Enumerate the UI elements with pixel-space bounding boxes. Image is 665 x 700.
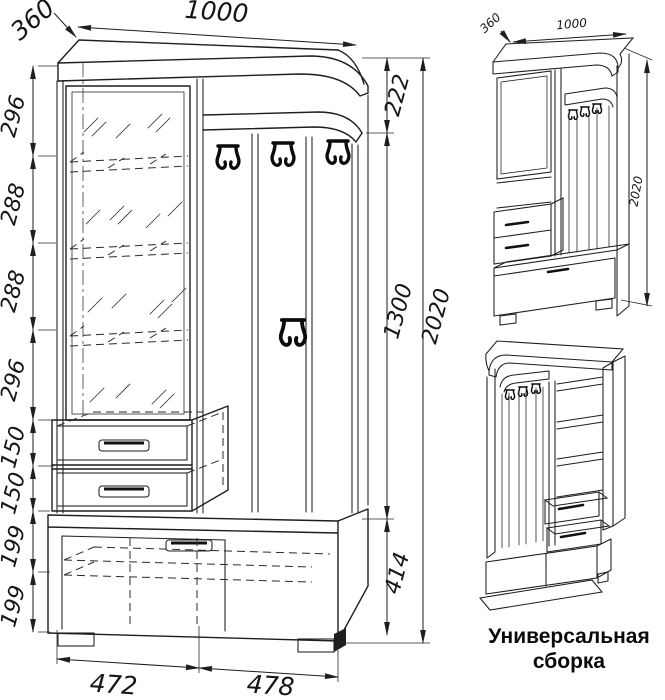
hallway-unit-blueprint: 1000 360 296 288 288 296 150 150 199 199… bbox=[0, 0, 665, 700]
iso2-open-flap bbox=[480, 580, 602, 610]
iso1-dimensions: 1000 360 2020 bbox=[477, 10, 652, 306]
bench-hidden-lines bbox=[64, 538, 330, 628]
iso2-canopy bbox=[486, 341, 623, 377]
iso-dim-1000: 1000 bbox=[556, 16, 588, 33]
canopy-shelf bbox=[58, 40, 368, 96]
iso1-right-panel bbox=[617, 54, 629, 316]
coat-hook-icon bbox=[568, 110, 577, 119]
dim-414: 414 bbox=[380, 550, 415, 597]
iso-view-universal bbox=[480, 341, 625, 610]
left-dimension-chain: 296 288 288 296 150 150 199 199 bbox=[0, 66, 58, 632]
right-dimension-chain: 222 1300 414 2020 bbox=[346, 58, 456, 643]
iso-dim-360: 360 bbox=[477, 10, 504, 36]
iso1-mirror bbox=[497, 71, 551, 179]
dim-472: 472 bbox=[89, 668, 139, 700]
bench-cabinet bbox=[48, 509, 368, 652]
caption-line-2: сборка bbox=[533, 650, 606, 673]
iso2-divider bbox=[549, 381, 555, 546]
technical-drawing: 1000 360 296 288 288 296 150 150 199 199… bbox=[0, 0, 665, 700]
dim-288: 288 bbox=[0, 181, 31, 228]
dim-199: 199 bbox=[0, 583, 31, 630]
dim-478: 478 bbox=[246, 669, 296, 700]
iso1-drawers bbox=[494, 198, 563, 264]
dim-222: 222 bbox=[380, 72, 415, 119]
dim-width-1000: 1000 bbox=[184, 0, 249, 28]
coat-hook-panel bbox=[217, 95, 368, 513]
left-side-panel bbox=[57, 81, 63, 513]
dim-199: 199 bbox=[0, 523, 31, 570]
coat-hook-icon bbox=[281, 320, 306, 345]
caption: Универсальная сборка bbox=[488, 625, 649, 673]
iso2-right-panel bbox=[603, 356, 625, 530]
dim-1300: 1300 bbox=[379, 281, 418, 342]
dim-288: 288 bbox=[0, 268, 31, 315]
coat-hook-icon bbox=[217, 146, 239, 168]
coat-hook-icon bbox=[327, 141, 349, 163]
center-divider bbox=[197, 79, 203, 513]
drawer-unit bbox=[52, 406, 228, 511]
iso2-hook-slats bbox=[502, 387, 543, 548]
iso-view-assembled: 1000 360 2020 bbox=[477, 10, 652, 325]
drawer-handle bbox=[99, 440, 149, 451]
iso1-canopy bbox=[493, 38, 633, 76]
dim-150: 150 bbox=[0, 470, 31, 517]
top-dimensions: 1000 360 bbox=[5, 0, 356, 46]
dim-150: 150 bbox=[0, 424, 31, 471]
hidden-shelves bbox=[70, 152, 188, 346]
iso1-bench bbox=[494, 244, 629, 325]
front-view bbox=[48, 40, 368, 652]
hat-shelf bbox=[203, 112, 362, 142]
coat-hook-icon bbox=[505, 390, 514, 399]
mirror-door bbox=[66, 86, 190, 420]
caption-line-1: Универсальная bbox=[488, 625, 649, 648]
drawer-handle bbox=[99, 486, 149, 497]
iso2-hat-shelf bbox=[500, 371, 549, 399]
dim-depth-360: 360 bbox=[5, 0, 60, 46]
iso2-left-panel bbox=[487, 369, 495, 558]
dim-296: 296 bbox=[0, 357, 31, 404]
iso1-divider bbox=[555, 69, 561, 256]
mirror-glass-hatch bbox=[84, 114, 186, 408]
coat-hook-icon bbox=[580, 107, 589, 116]
iso1-shelf-lines bbox=[497, 177, 551, 208]
dim-296: 296 bbox=[0, 93, 31, 140]
iso1-hook-slats bbox=[569, 106, 609, 253]
coat-hook-icon bbox=[272, 143, 294, 165]
iso2-open-bench bbox=[480, 539, 611, 610]
